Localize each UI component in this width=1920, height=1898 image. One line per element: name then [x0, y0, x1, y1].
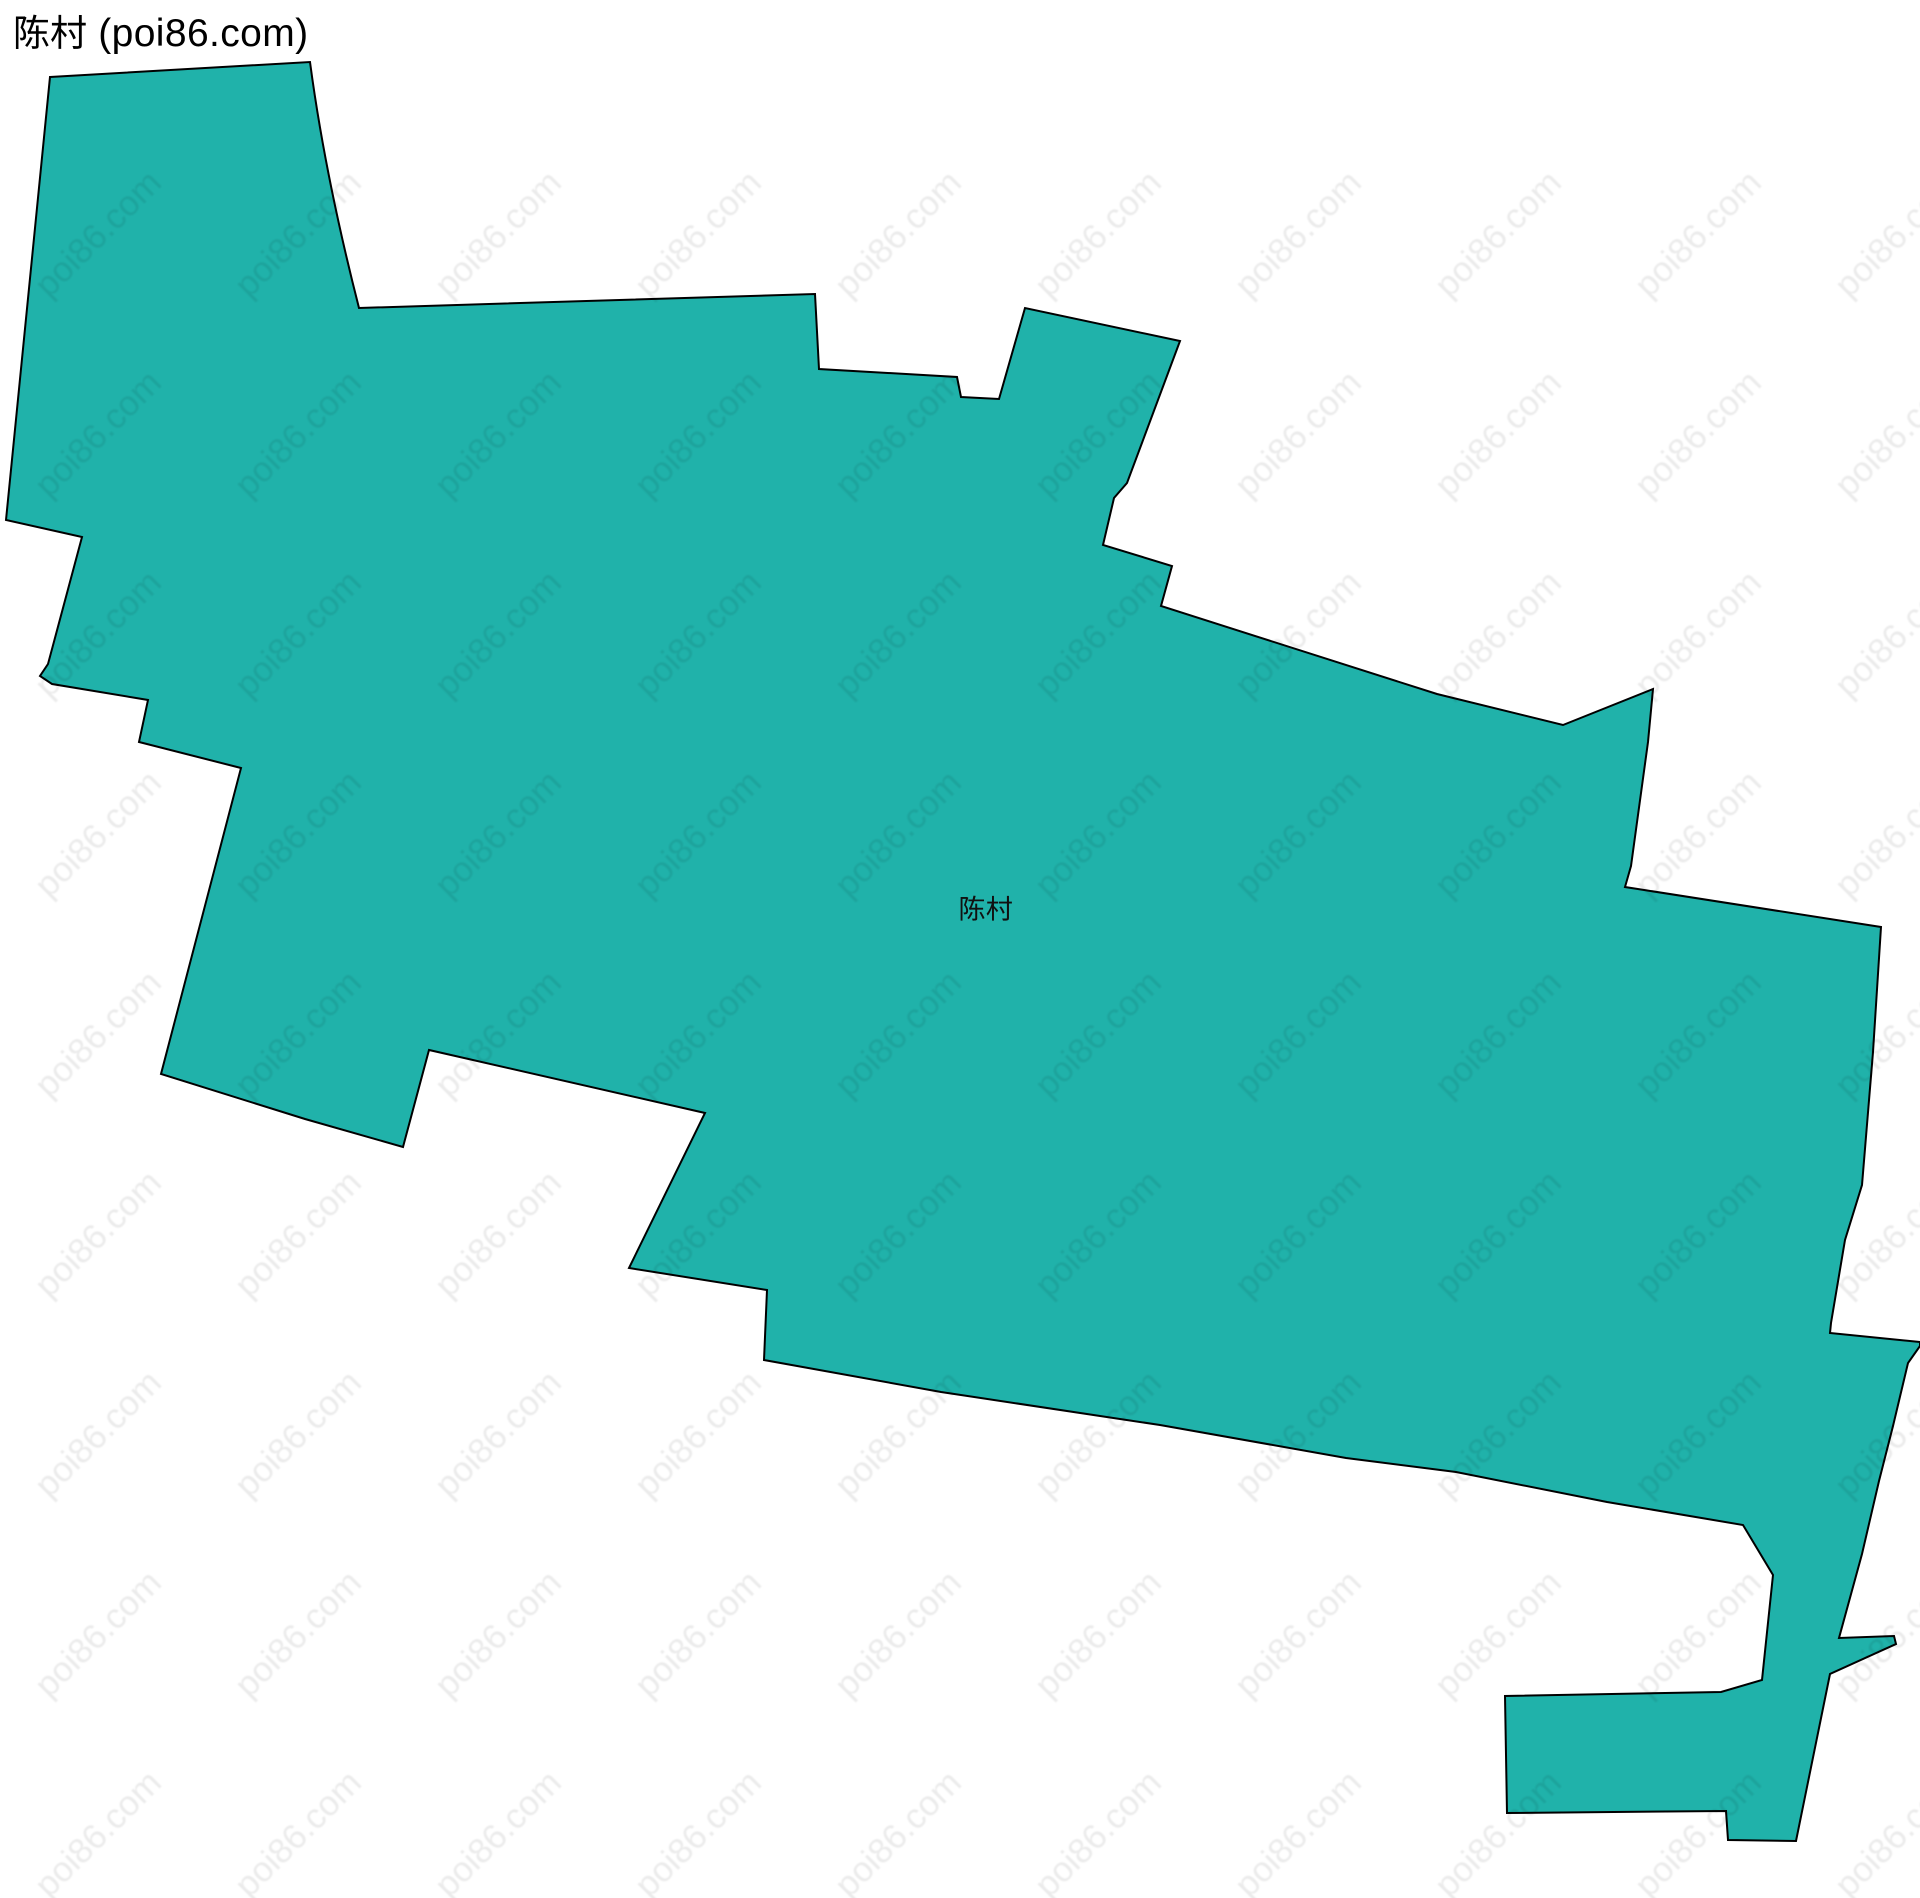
svg-text:poi86.com: poi86.com: [427, 1763, 569, 1898]
svg-text:poi86.com: poi86.com: [27, 763, 169, 905]
svg-text:poi86.com: poi86.com: [427, 1363, 569, 1505]
svg-text:poi86.com: poi86.com: [27, 1763, 169, 1898]
svg-text:poi86.com: poi86.com: [627, 1563, 769, 1705]
svg-text:poi86.com: poi86.com: [27, 1563, 169, 1705]
svg-text:poi86.com: poi86.com: [1027, 1563, 1169, 1705]
svg-text:poi86.com: poi86.com: [27, 1163, 169, 1305]
svg-text:poi86.com: poi86.com: [1827, 1763, 1920, 1898]
svg-text:poi86.com: poi86.com: [1827, 363, 1920, 505]
svg-text:poi86.com: poi86.com: [1827, 163, 1920, 305]
svg-text:poi86.com: poi86.com: [1027, 1763, 1169, 1898]
svg-text:poi86.com: poi86.com: [827, 1563, 969, 1705]
svg-text:poi86.com: poi86.com: [1627, 563, 1769, 705]
svg-text:poi86.com: poi86.com: [1227, 1763, 1369, 1898]
svg-text:poi86.com: poi86.com: [1427, 363, 1569, 505]
svg-text:poi86.com: poi86.com: [827, 1763, 969, 1898]
svg-text:poi86.com: poi86.com: [427, 163, 569, 305]
svg-text:poi86.com: poi86.com: [1427, 1563, 1569, 1705]
svg-text:poi86.com: poi86.com: [1027, 163, 1169, 305]
svg-text:poi86.com: poi86.com: [1627, 163, 1769, 305]
svg-text:poi86.com: poi86.com: [827, 163, 969, 305]
svg-text:poi86.com: poi86.com: [1627, 363, 1769, 505]
svg-text:poi86.com: poi86.com: [427, 1163, 569, 1305]
svg-text:poi86.com: poi86.com: [627, 1763, 769, 1898]
svg-text:poi86.com: poi86.com: [227, 1163, 369, 1305]
svg-text:poi86.com: poi86.com: [1227, 163, 1369, 305]
svg-text:poi86.com: poi86.com: [1827, 563, 1920, 705]
svg-text:poi86.com: poi86.com: [627, 163, 769, 305]
svg-text:poi86.com: poi86.com: [1427, 1763, 1569, 1898]
svg-text:poi86.com: poi86.com: [1627, 763, 1769, 905]
svg-text:poi86.com: poi86.com: [1227, 363, 1369, 505]
svg-text:poi86.com: poi86.com: [27, 963, 169, 1105]
svg-text:poi86.com: poi86.com: [427, 1563, 569, 1705]
svg-text:(poi86.com): (poi86.com): [87, 12, 309, 55]
svg-text:poi86.com: poi86.com: [227, 1363, 369, 1505]
svg-text:poi86.com: poi86.com: [1827, 763, 1920, 905]
svg-text:poi86.com: poi86.com: [627, 1363, 769, 1505]
svg-text:poi86.com: poi86.com: [227, 1563, 369, 1705]
svg-text:poi86.com: poi86.com: [1427, 563, 1569, 705]
svg-text:poi86.com: poi86.com: [27, 1363, 169, 1505]
svg-text:poi86.com: poi86.com: [1227, 1563, 1369, 1705]
svg-text:poi86.com: poi86.com: [1427, 163, 1569, 305]
svg-text:poi86.com: poi86.com: [227, 1763, 369, 1898]
